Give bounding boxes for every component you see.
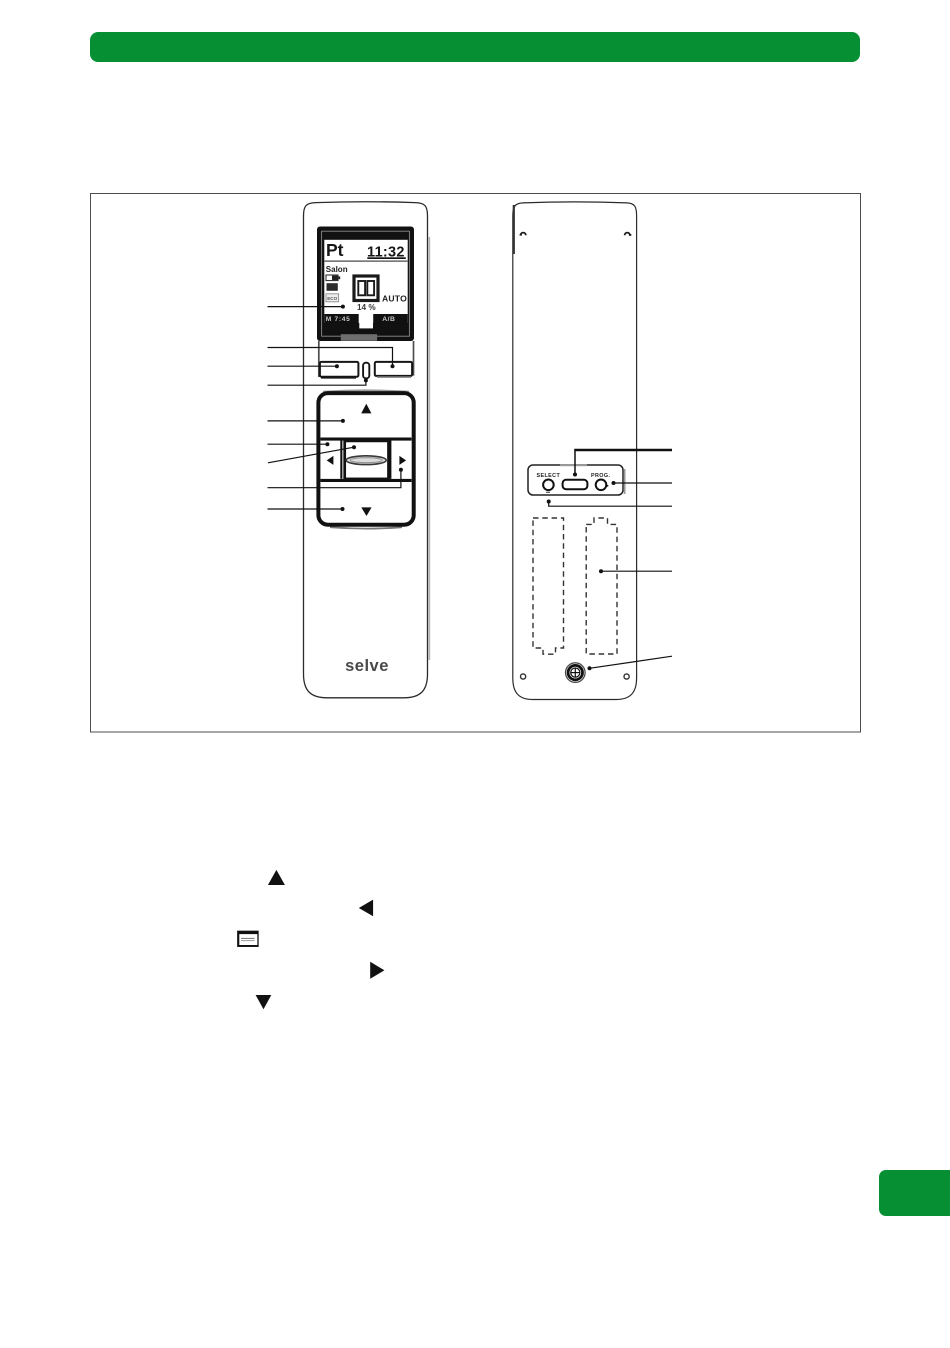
svg-text:ECO: ECO	[327, 296, 337, 301]
svg-text:Salon: Salon	[326, 265, 348, 274]
svg-text:M 7:45: M 7:45	[326, 316, 351, 323]
svg-text:Pt: Pt	[326, 240, 344, 260]
svg-text:PROG.: PROG.	[591, 473, 610, 479]
svg-text:selve: selve	[345, 657, 389, 675]
svg-text:14 %: 14 %	[357, 303, 376, 312]
svg-text:AUTO: AUTO	[382, 293, 407, 303]
svg-text:A/B: A/B	[382, 316, 395, 323]
svg-text:SELECT: SELECT	[537, 473, 561, 479]
